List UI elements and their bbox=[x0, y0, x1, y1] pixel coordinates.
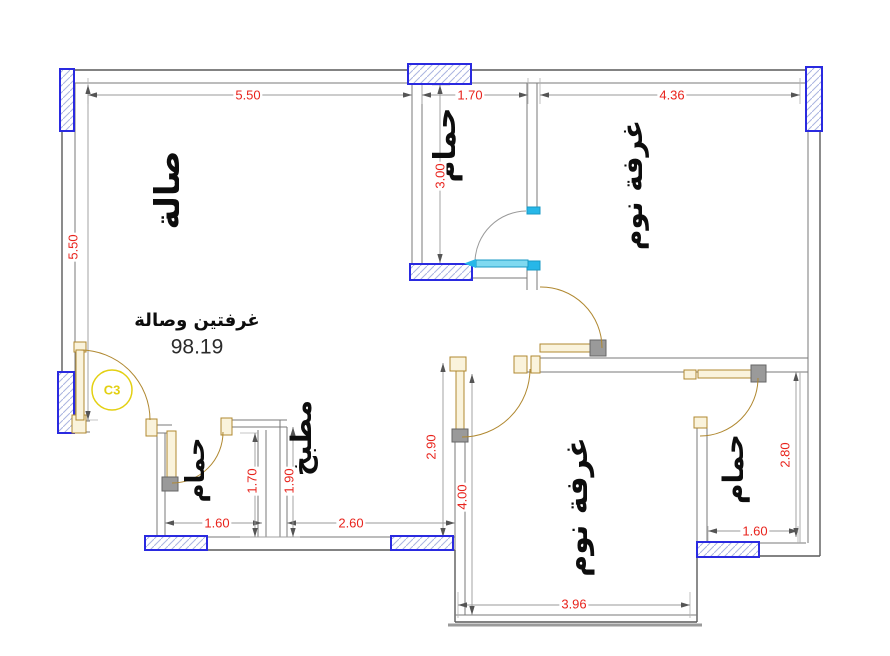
bedroom1-door bbox=[540, 287, 606, 356]
door-hinge bbox=[452, 429, 468, 442]
door-hinge bbox=[751, 365, 766, 382]
door-leaf bbox=[76, 350, 84, 420]
room-label-bathroom-left: حمام bbox=[183, 438, 209, 503]
door-leaf bbox=[167, 431, 176, 483]
dim-bathroom-right-height: 2.80 bbox=[779, 440, 792, 469]
door-hinge bbox=[590, 340, 606, 356]
door-leaf bbox=[476, 260, 528, 267]
room-label-bedroom-1: غرفة نوم bbox=[619, 120, 647, 250]
door-leaf bbox=[456, 371, 464, 435]
door-hinge bbox=[162, 477, 178, 491]
dim-bedroom1-width: 4.36 bbox=[657, 89, 686, 102]
floor-plan-canvas: صالة حمام غرفة نوم مطبخ حمام غرفة نوم حم… bbox=[0, 0, 890, 656]
kitchen-door bbox=[450, 356, 540, 442]
dim-hall-width: 5.50 bbox=[233, 89, 262, 102]
dim-bedroom2-width: 3.96 bbox=[559, 598, 588, 611]
room-label-bathroom-right: حمام bbox=[720, 434, 748, 504]
window bbox=[408, 64, 471, 84]
dim-bathroom-top-width: 1.70 bbox=[455, 89, 484, 102]
dim-bathroom-top-height: 3.00 bbox=[434, 161, 447, 190]
dim-bathroom-left-height: 1.70 bbox=[246, 466, 259, 495]
window bbox=[410, 264, 472, 280]
dim-kitchen-height: 2.90 bbox=[425, 432, 438, 461]
window bbox=[697, 542, 759, 557]
window bbox=[806, 67, 822, 131]
bathroom-top-door bbox=[464, 207, 540, 270]
bathroom-right-door bbox=[684, 365, 766, 436]
dim-bathroom-left-width: 1.60 bbox=[202, 517, 231, 530]
dim-bathroom-right-width: 1.60 bbox=[740, 525, 769, 538]
window bbox=[145, 536, 207, 550]
unit-area-value: 98.19 bbox=[171, 337, 224, 358]
door-leaf bbox=[698, 370, 755, 378]
door-leaf bbox=[540, 344, 592, 352]
room-label-kitchen: مطبخ bbox=[288, 400, 316, 476]
dim-bedroom2-height: 4.00 bbox=[456, 482, 469, 511]
dim-hall-height: 5.50 bbox=[67, 232, 80, 261]
door-swing-arc bbox=[475, 211, 526, 261]
unit-summary-label: غرفتين وصالة bbox=[134, 312, 259, 330]
dim-kitchen-depth: 1.90 bbox=[283, 466, 296, 495]
door-swing-arc bbox=[540, 287, 602, 348]
door-mark-label: C3 bbox=[104, 384, 121, 397]
room-label-bedroom-2: غرفة نوم bbox=[563, 437, 593, 577]
door-swing-arc bbox=[700, 378, 758, 436]
dim-kitchen-width: 2.60 bbox=[336, 517, 365, 530]
window bbox=[60, 69, 74, 131]
window bbox=[391, 536, 453, 550]
room-label-hall: صالة bbox=[151, 150, 185, 229]
